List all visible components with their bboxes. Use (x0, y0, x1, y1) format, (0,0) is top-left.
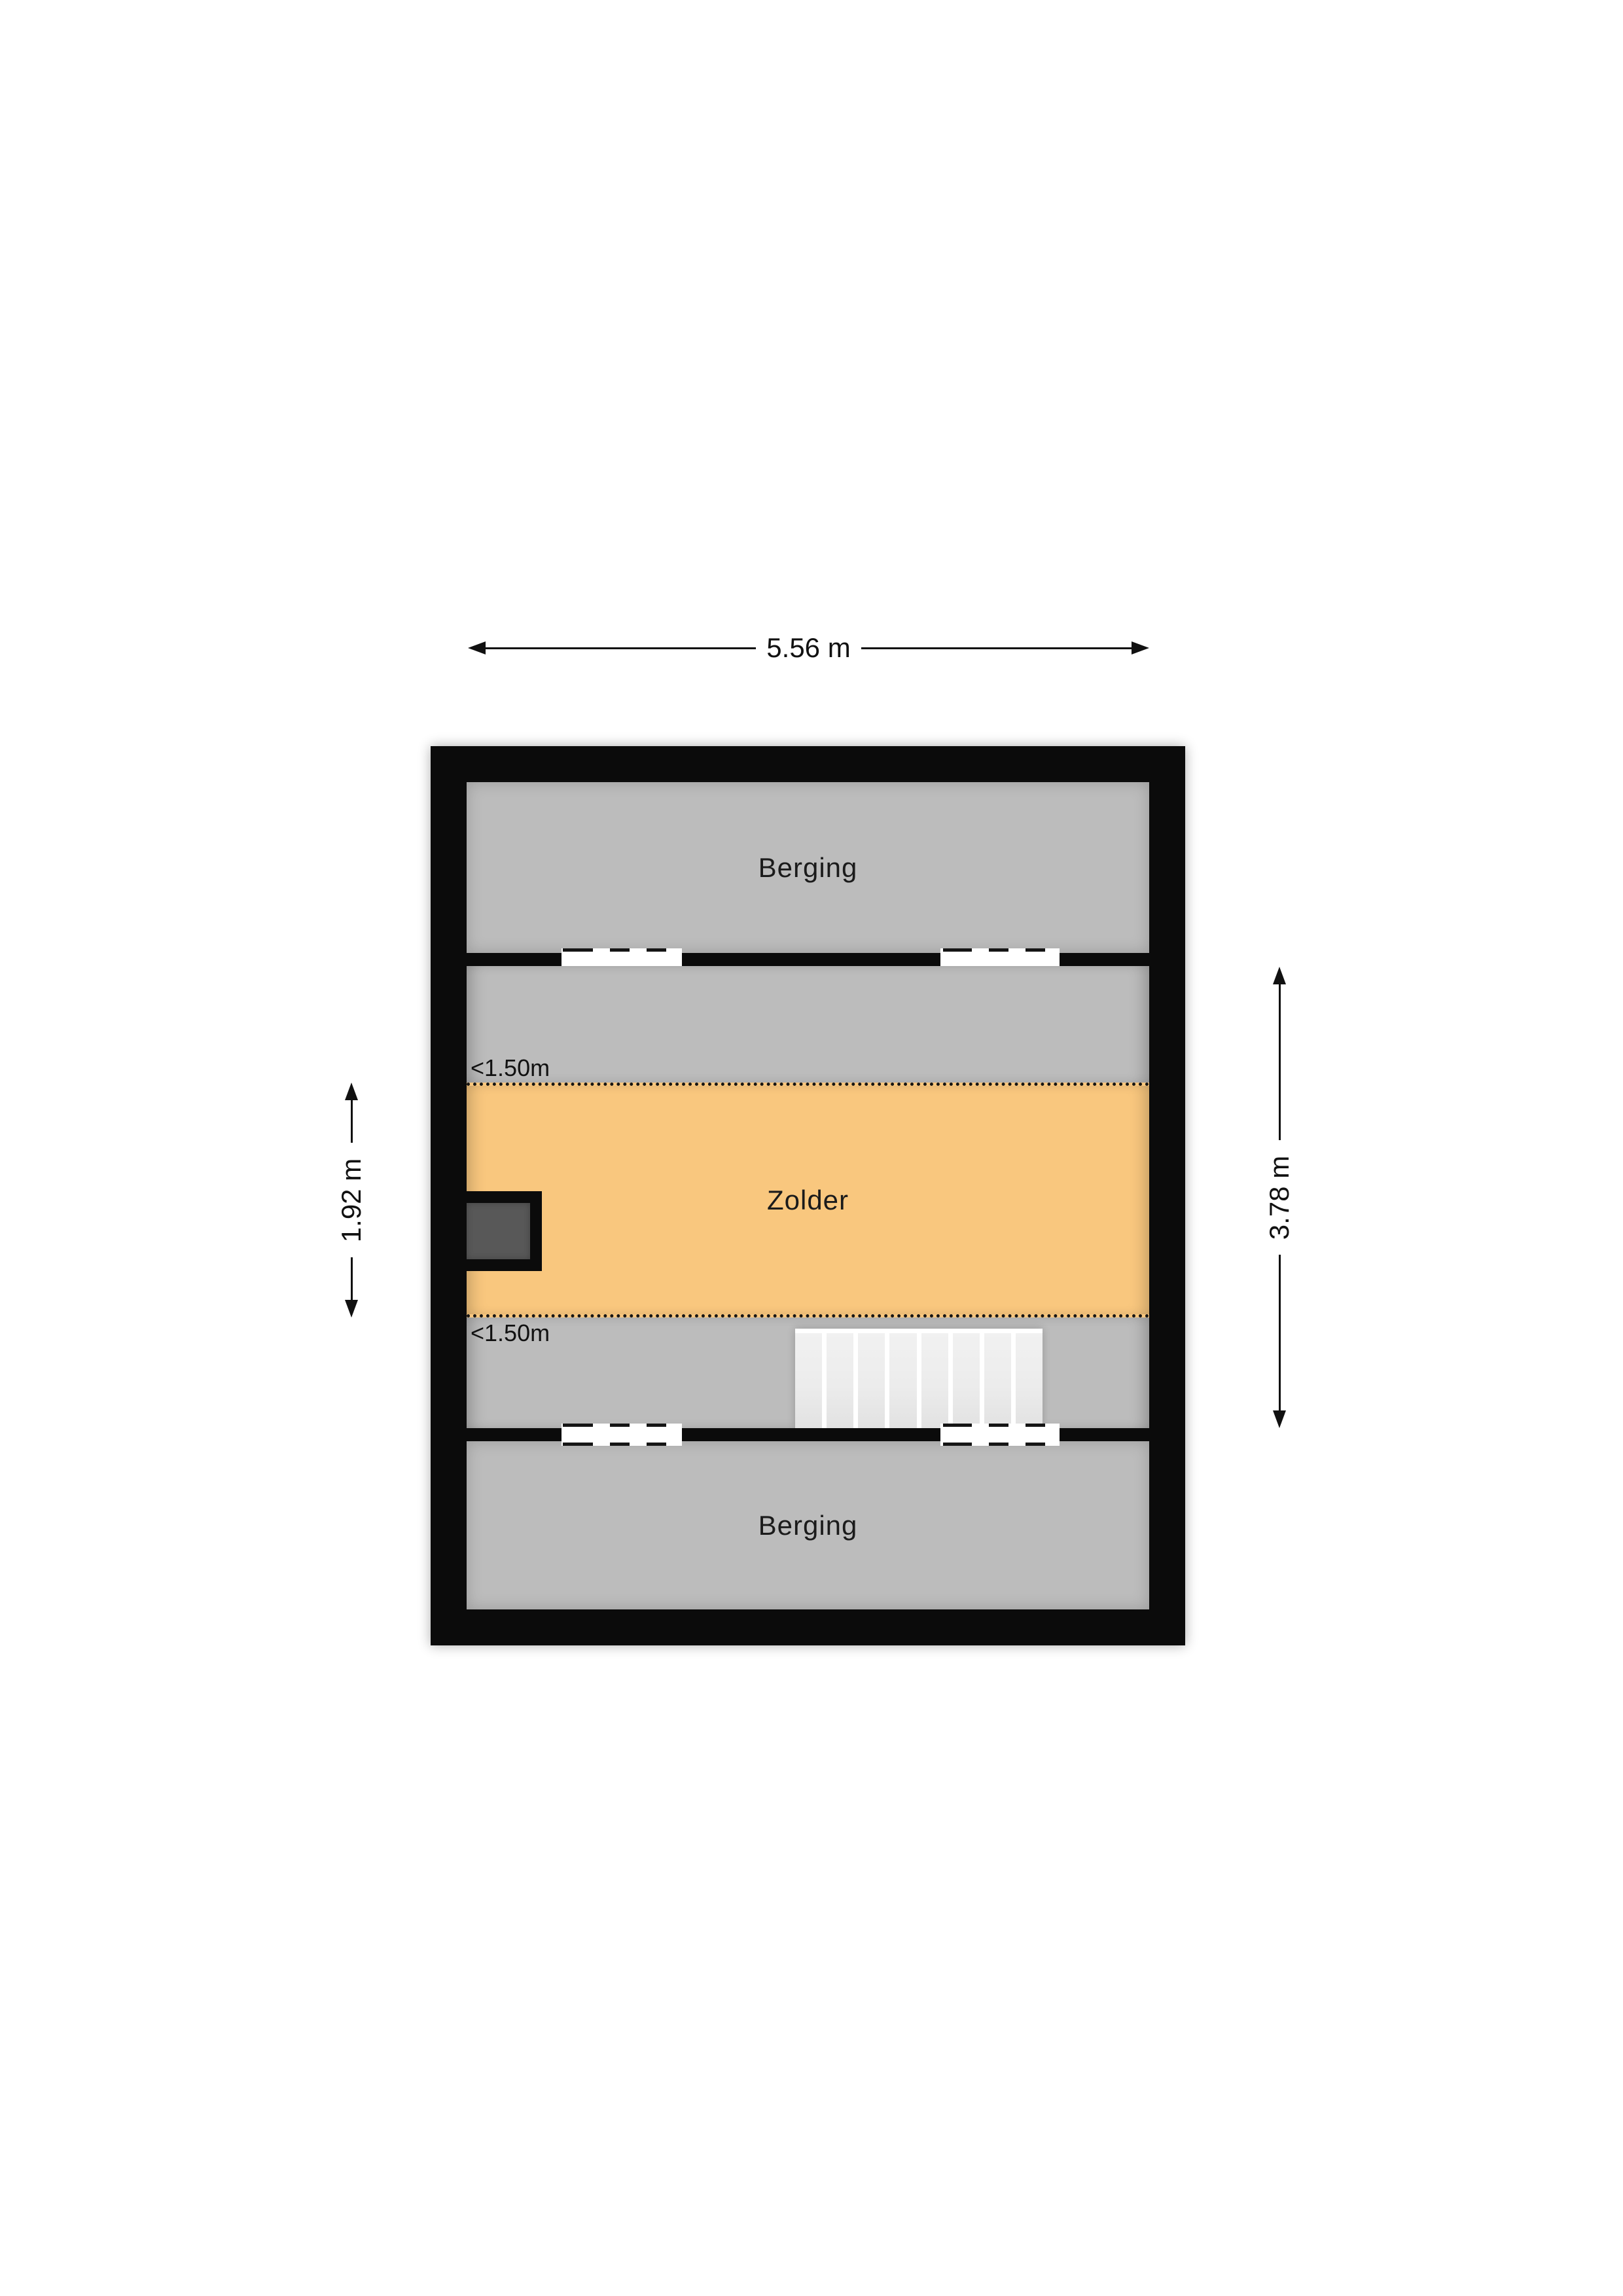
room-berging-bottom: Berging (467, 1441, 1149, 1609)
stairs (795, 1329, 1043, 1428)
low-ceiling-label: <1.50m (471, 1054, 550, 1082)
window (562, 1424, 682, 1446)
stair-step (795, 1333, 822, 1428)
stair-step (858, 1333, 885, 1428)
arrowhead-down-icon (345, 1300, 358, 1318)
stair-step (827, 1333, 853, 1428)
stair-step (1016, 1333, 1043, 1428)
room-label: Berging (758, 852, 858, 884)
dimension-line (351, 1257, 353, 1300)
stair-step (921, 1333, 948, 1428)
dimension-right-height-label: 3.78 m (1264, 1155, 1295, 1239)
dimension-left-height-label: 1.92 m (336, 1158, 367, 1242)
dimension-line (351, 1100, 353, 1143)
room-zolder: Zolder (467, 1083, 1149, 1318)
window (940, 1424, 1060, 1446)
floor-plan: Berging <1.50m Zolder <1.50m (431, 746, 1185, 1645)
arrowhead-left-icon (468, 641, 486, 655)
dimension-label-box: 1.92 m (337, 1143, 366, 1257)
low-ceiling-label: <1.50m (471, 1319, 550, 1347)
floorplan-page: 5.56 m 1.92 m 3.78 m Berging (0, 0, 1623, 2296)
room-label: Zolder (767, 1185, 849, 1216)
chimney (467, 1191, 542, 1271)
arrowhead-down-icon (1273, 1410, 1286, 1428)
dimension-width: 5.56 m (468, 631, 1149, 665)
dimension-line (1279, 984, 1281, 1140)
dimension-label-box: 3.78 m (1265, 1140, 1294, 1255)
dimension-width-label: 5.56 m (766, 632, 850, 664)
dimension-line (486, 647, 756, 649)
floor-plan-interior: Berging <1.50m Zolder <1.50m (467, 782, 1149, 1609)
chimney-flue (467, 1203, 530, 1259)
stair-step (984, 1333, 1011, 1428)
dimension-line (1279, 1255, 1281, 1410)
stair-step (953, 1333, 980, 1428)
stair-step (889, 1333, 916, 1428)
arrowhead-right-icon (1132, 641, 1149, 655)
sloped-ceiling-strip-lower: <1.50m (467, 1318, 1149, 1428)
dimension-left-height: 1.92 m (337, 1083, 366, 1318)
interior-wall-bottom (467, 1428, 1149, 1441)
arrowhead-up-icon (1273, 967, 1286, 984)
sloped-ceiling-strip-upper: <1.50m (467, 966, 1149, 1083)
dimension-right-height: 3.78 m (1265, 967, 1294, 1428)
arrowhead-up-icon (345, 1083, 358, 1100)
room-berging-top: Berging (467, 782, 1149, 953)
interior-wall-top (467, 953, 1149, 966)
room-label: Berging (758, 1510, 858, 1541)
dimension-line (861, 647, 1132, 649)
